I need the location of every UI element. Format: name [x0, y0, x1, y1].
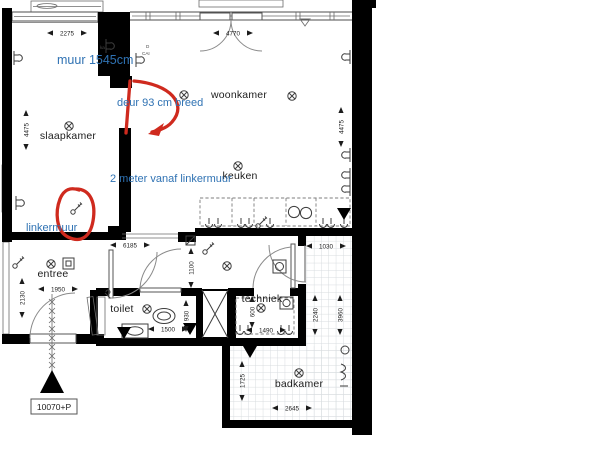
annotation-linkermuur: linkermuur: [26, 222, 78, 234]
toilet-door-leaf: [140, 288, 181, 292]
dimension-4475-links: 4475: [23, 110, 30, 150]
annotation-afstand: 2 meter vanaf linkermuur: [110, 173, 232, 185]
sink-bowl-icon: [300, 207, 311, 218]
windows: [2, 0, 352, 334]
dimension-4475-rechts: 4475: [338, 107, 345, 147]
wall-label-d: D: [146, 44, 150, 49]
light-switch-icon: [13, 257, 24, 269]
svg-text:1725: 1725: [239, 374, 246, 389]
svg-text:1030: 1030: [319, 243, 334, 250]
vent-point-icon: [337, 208, 351, 220]
dimension-2275: 2275: [47, 30, 87, 37]
sink-bowl-icon: [288, 206, 299, 217]
techniek-door-swing: [253, 247, 291, 288]
dimension-1490: 1490: [246, 327, 286, 334]
wall-label-cai: CAI: [142, 51, 150, 56]
room-label-woonkamer: woonkamer: [210, 89, 267, 101]
ceiling-light-icon: [257, 304, 265, 312]
room-label-entree: entree: [38, 268, 69, 280]
dimension-1100: 1100: [188, 248, 195, 288]
wall-socket-icon: [14, 51, 22, 65]
svg-text:4475: 4475: [23, 123, 30, 138]
wall-socket-icon: [342, 182, 350, 196]
toilet-door-swing: [140, 249, 181, 290]
ceiling-light-icon: [143, 305, 151, 313]
techniek-door-leaf: [291, 244, 295, 288]
floor-plan-drawing: ka D CAI slaapkamer woonkamer keuken ent…: [0, 0, 600, 450]
corridor-door-swing: [269, 245, 306, 282]
ceiling-light-icon: [47, 260, 55, 268]
ceiling-light-icon: [234, 162, 242, 170]
shaft: [202, 290, 228, 338]
svg-text:2645: 2645: [285, 405, 300, 412]
vent-point-icon: [117, 327, 131, 339]
awning-outline: [199, 0, 283, 7]
annotation-deur: deur 93 cm breed: [117, 97, 203, 109]
wall-socket-icon: [342, 50, 350, 64]
svg-text:2240: 2240: [312, 308, 319, 323]
svg-text:2130: 2130: [19, 291, 26, 306]
svg-text:6185: 6185: [123, 242, 138, 249]
french-door-leaf-right: [232, 13, 262, 20]
kitchen-counter: [200, 198, 351, 228]
svg-text:1950: 1950: [51, 286, 66, 293]
dimension-1500: 1500: [148, 326, 188, 333]
room-label-toilet: toilet: [110, 303, 133, 315]
dimension-6185: 6185: [110, 242, 150, 249]
svg-text:1500: 1500: [161, 326, 176, 333]
front-door-swing: [30, 293, 75, 338]
svg-text:3960: 3960: [337, 308, 344, 323]
toilet-bowl-icon: [153, 309, 175, 324]
wall-socket-icon: [342, 148, 350, 162]
entree-left-wall: [3, 242, 9, 334]
room-label-techniek: techniek: [242, 293, 283, 305]
svg-text:2275: 2275: [60, 30, 75, 37]
thresholds: [122, 234, 178, 238]
svg-text:1490: 1490: [259, 327, 274, 334]
light-switch-icon: [203, 243, 214, 255]
ceiling-light-icon: [223, 262, 231, 270]
room-label-badkamer: badkamer: [275, 378, 324, 390]
wall-socket-icon: [342, 168, 350, 182]
ceiling-light-icon: [65, 122, 73, 130]
ceiling-light-icon: [288, 92, 296, 100]
dimension-2130: 2130: [19, 278, 26, 318]
floor-plan-page: ka D CAI slaapkamer woonkamer keuken ent…: [0, 0, 600, 450]
svg-text:1100: 1100: [188, 261, 195, 275]
dimension-4770: 4770: [213, 30, 253, 37]
room-label-slaapkamer: slaapkamer: [40, 130, 97, 142]
elevation-label: 10070+P: [37, 402, 72, 412]
wall-label-ka: ka: [100, 45, 105, 50]
svg-text:930: 930: [183, 310, 190, 321]
wall-socket-icon: [16, 196, 24, 210]
light-switch-icon: [71, 203, 82, 215]
dimension-1950: 1950: [38, 286, 78, 293]
svg-text:4475: 4475: [338, 120, 345, 135]
svg-text:600: 600: [249, 306, 256, 317]
shutter-roll-icon: [37, 4, 57, 9]
french-door-leaf-left: [200, 13, 230, 20]
annotation-muur: muur 1545cm: [57, 53, 133, 67]
closet-outline: [97, 297, 105, 335]
entrance-arrow-icon: [40, 370, 64, 393]
svg-text:4770: 4770: [226, 30, 241, 37]
